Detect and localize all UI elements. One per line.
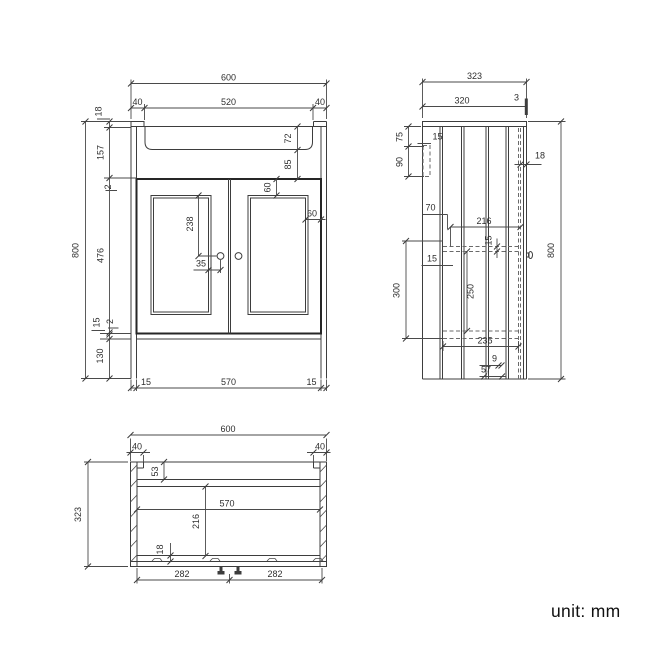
dim-side-back-gap: 70: [425, 203, 435, 213]
dim-side-back-panel: 3: [514, 93, 519, 103]
dim-front-basin-depth: 72: [283, 133, 293, 143]
dim-front-upper-section: 157: [96, 145, 106, 160]
dim-front-overall-width: 600: [221, 73, 236, 83]
dim-side-overall-depth: 323: [467, 71, 482, 81]
dim-plan-overall-width: 600: [220, 424, 235, 434]
dim-side-rail-thickness: 15: [432, 132, 442, 142]
side-view-dimensions: 323 320 3 75 90 15 18 70 216 15 15: [392, 71, 566, 382]
technical-drawing-page: 600 40 520 40 800 18 157 2 476 15 2 130 …: [0, 0, 650, 650]
dim-front-plinth-height: 130: [95, 348, 105, 363]
dim-front-door-bottom-gap: 2: [105, 319, 115, 324]
dim-front-door-top-gap: 2: [103, 184, 113, 189]
dim-plan-overall-depth: 323: [73, 507, 83, 522]
dim-side-top-depth: 320: [454, 96, 469, 106]
dim-front-knob-offset: 35: [196, 259, 206, 269]
dim-front-basin-offset-left: 40: [132, 97, 142, 107]
dim-plan-interior-depth: 216: [191, 514, 201, 529]
dim-plan-bracket-right: 40: [315, 442, 325, 452]
dim-side-shelf-depth: 216: [476, 216, 491, 226]
dim-plan-door-right-width: 282: [267, 569, 282, 579]
dim-front-panel-to-knob: 238: [185, 216, 195, 231]
left-door-knob: [217, 253, 224, 260]
dim-front-basin-offset-right: 40: [315, 97, 325, 107]
dim-plan-back-rail-depth: 53: [150, 466, 160, 476]
front-view: 600 40 520 40 800 18 157 2 476 15 2 130 …: [71, 73, 330, 392]
dim-side-rail-top-offset: 75: [395, 132, 405, 142]
dim-plan-bracket-left: 40: [132, 442, 142, 452]
dim-side-plinth-recess: 9: [492, 354, 497, 364]
dim-front-panel-top-inset: 60: [263, 182, 273, 192]
dim-side-rail-height: 90: [395, 157, 405, 167]
plan-view-dimensions: 600 40 40 323 53 570 216 18 282 282: [73, 424, 331, 584]
hinge-marks: [152, 559, 323, 562]
dim-front-bottom-rail: 15: [92, 317, 102, 327]
dim-plan-door-thickness: 18: [155, 544, 165, 554]
front-view-dimensions: 600 40 520 40 800 18 157 2 476 15 2 130 …: [71, 73, 330, 392]
dim-front-side-thickness-left: 15: [141, 377, 151, 387]
dim-front-top-thickness: 18: [94, 106, 104, 116]
dim-side-plinth-depth: 57: [481, 365, 491, 375]
plan-right-knob: [235, 567, 242, 575]
side-view: 323 320 3 75 90 15 18 70 216 15 15: [392, 71, 566, 382]
dim-front-side-thickness-right: 15: [306, 377, 316, 387]
dim-plan-door-left-width: 282: [174, 569, 189, 579]
dim-side-shelf-to-bottom: 250: [466, 284, 476, 299]
dim-front-door-height: 476: [96, 248, 106, 263]
vanity-drawing-svg: 600 40 520 40 800 18 157 2 476 15 2 130 …: [0, 0, 650, 650]
dim-plan-interior-width: 570: [219, 499, 234, 509]
unit-label: unit: mm: [551, 601, 621, 622]
plan-view: 600 40 40 323 53 570 216 18 282 282: [73, 424, 331, 584]
dim-side-overall-height: 800: [546, 243, 556, 258]
dim-side-shelf-thickness: 15: [484, 235, 494, 245]
dim-front-overall-height: 800: [71, 243, 81, 258]
plan-left-knob: [218, 567, 225, 575]
dim-front-basin-width: 520: [221, 97, 236, 107]
dim-side-shelf-back-gap: 15: [427, 254, 437, 264]
dim-front-panel-side-inset: 60: [307, 209, 317, 219]
dim-front-interior-width: 570: [221, 377, 236, 387]
dim-front-basin-to-doors: 85: [283, 159, 293, 169]
dim-side-door-thickness: 18: [535, 151, 545, 161]
dim-side-bottom-panel-depth: 235: [477, 336, 492, 346]
right-door-knob: [235, 253, 242, 260]
dim-side-opening-height: 300: [392, 283, 402, 298]
plan-view-structure: [131, 462, 327, 575]
